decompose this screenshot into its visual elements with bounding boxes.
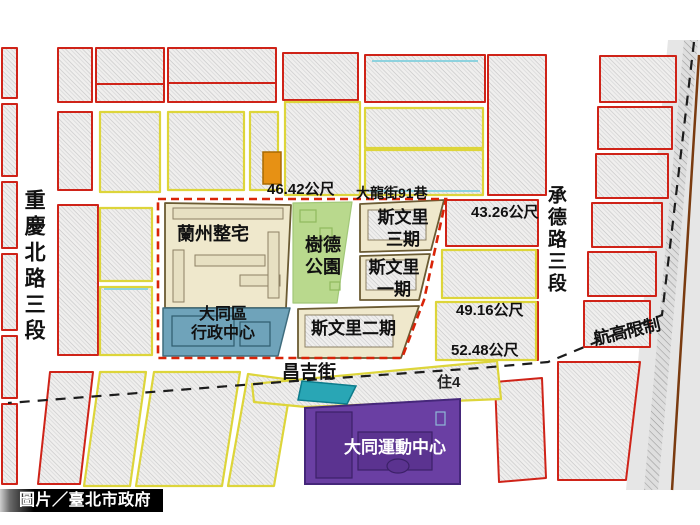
measurement-4: 52.48公尺 <box>451 342 519 359</box>
city-block <box>442 250 536 298</box>
city-block <box>2 104 17 176</box>
city-block <box>283 53 358 100</box>
zone-label-siwenli-p2: 斯文里二期 <box>311 319 396 339</box>
city-block <box>600 56 676 102</box>
city-block <box>168 48 276 102</box>
street-label-changji: 昌吉街 <box>282 362 336 383</box>
zone-label-shude-park: 樹德 公園 <box>296 234 350 278</box>
measurement-3: 49.16公尺 <box>456 302 524 319</box>
city-block <box>58 48 92 102</box>
city-block <box>598 107 672 149</box>
city-block <box>2 48 17 98</box>
city-block <box>2 182 17 248</box>
city-block <box>488 55 546 195</box>
zone-label-line: 行政中心 <box>158 324 288 343</box>
zone-label-siwenli-p3: 斯文里 三期 <box>360 207 446 251</box>
city-block <box>2 336 17 398</box>
city-block <box>558 362 640 480</box>
measurement-2: 43.26公尺 <box>471 204 539 221</box>
credit-bar: 圖片／臺北市政府 <box>0 489 163 512</box>
street-label-chengde: 承德路三段 <box>544 185 566 295</box>
city-block <box>495 378 546 482</box>
zone-label-line: 斯文里 <box>360 207 446 229</box>
zone-label-lanzhou: 蘭州整宅 <box>177 224 249 245</box>
pool-zone <box>298 381 356 404</box>
zone-label-line: 斯文里 <box>354 257 434 279</box>
highlighted-building <box>263 152 281 184</box>
zone-label-siwenli-p1: 斯文里 一期 <box>354 257 434 301</box>
map-canvas: 重慶北路三段 承德路三段 大龍街91巷 昌吉街 46.42公尺 43.26公尺 … <box>0 0 700 525</box>
city-block <box>58 112 92 190</box>
zone-label-datong-sports: 大同運動中心 <box>344 438 446 458</box>
city-block <box>100 112 160 192</box>
city-block <box>365 55 485 102</box>
city-block <box>100 287 152 355</box>
city-block <box>38 372 93 484</box>
zoning-label: 住4 <box>437 374 460 391</box>
city-block <box>2 254 17 330</box>
credit-text: 圖片／臺北市政府 <box>19 492 151 509</box>
zone-label-line: 樹德 <box>296 234 350 256</box>
city-block <box>58 205 98 355</box>
zone-label-line: 一期 <box>354 279 434 301</box>
street-label-chongqing: 重慶北路三段 <box>21 189 45 345</box>
zone-label-line: 公園 <box>296 256 350 278</box>
city-block <box>96 48 164 102</box>
city-block <box>588 252 656 296</box>
city-block <box>100 208 152 281</box>
zone-label-datong-admin: 大同區 行政中心 <box>158 305 288 343</box>
street-label-dalong-lane: 大龍街91巷 <box>356 185 428 201</box>
city-block <box>168 112 244 190</box>
city-block <box>2 404 17 484</box>
city-block <box>84 372 146 486</box>
city-block <box>592 203 662 247</box>
measurement-1: 46.42公尺 <box>267 181 335 198</box>
zone-label-line: 三期 <box>360 229 446 251</box>
city-block <box>365 108 483 148</box>
zone-label-line: 大同區 <box>158 305 288 324</box>
city-block <box>596 154 668 198</box>
